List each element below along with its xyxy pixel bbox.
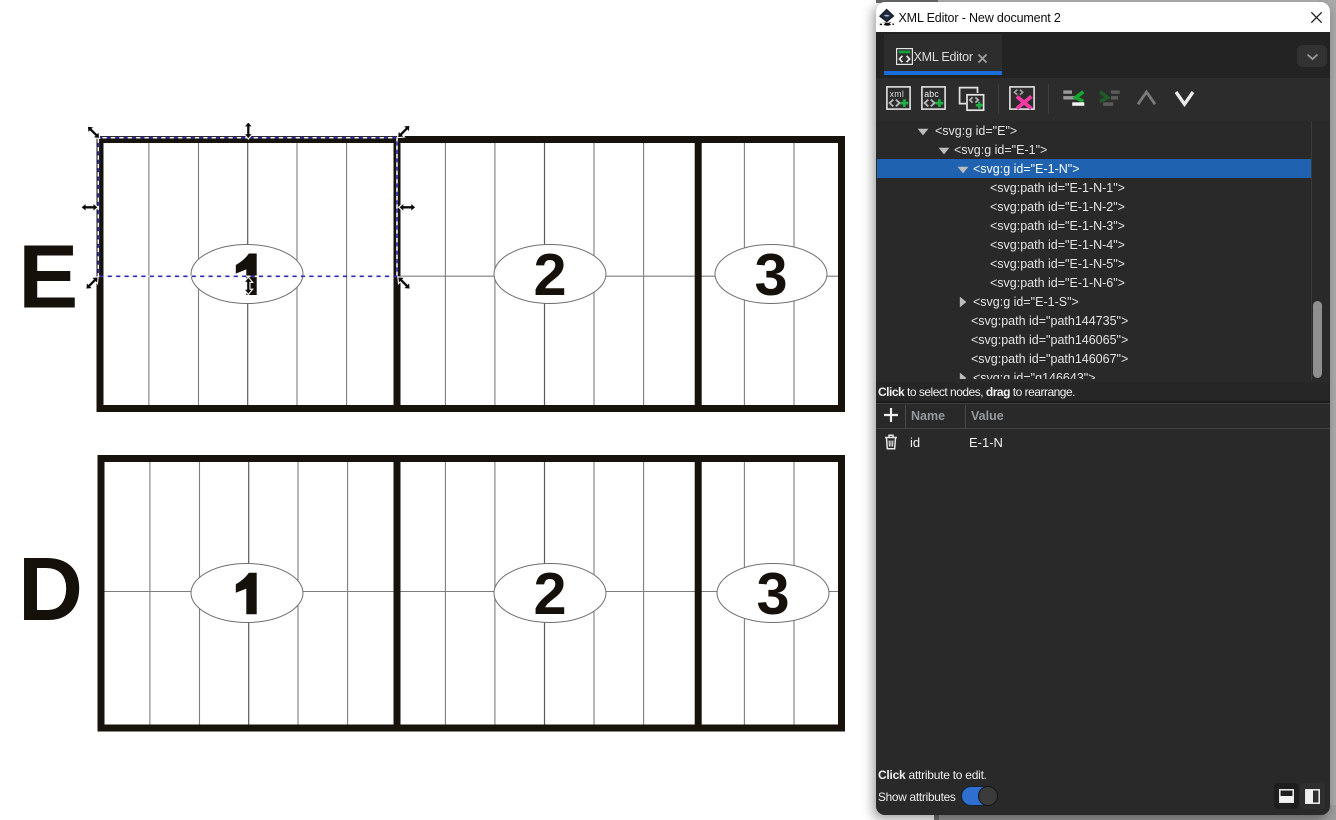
svg-text:3: 3 xyxy=(756,560,789,627)
svg-text:2: 2 xyxy=(533,560,566,627)
svg-text:D: D xyxy=(18,540,83,640)
svg-text:2: 2 xyxy=(533,241,566,308)
svg-text:abc: abc xyxy=(924,89,939,99)
svg-text:xml: xml xyxy=(890,89,905,99)
svg-text:E: E xyxy=(18,228,78,328)
svg-text:3: 3 xyxy=(754,241,787,308)
